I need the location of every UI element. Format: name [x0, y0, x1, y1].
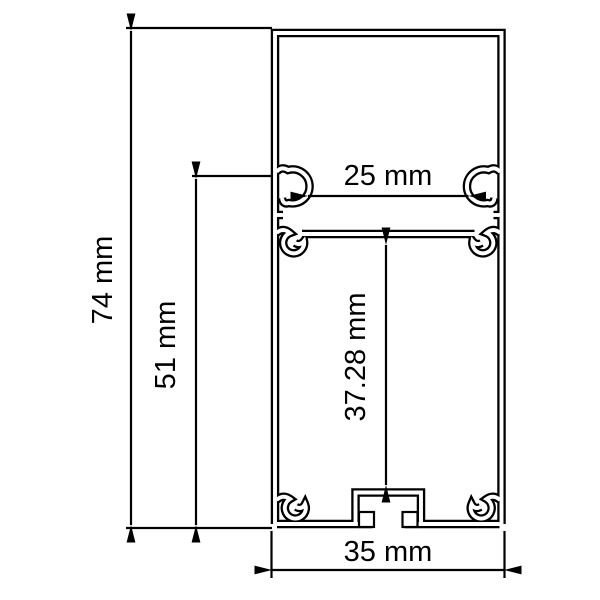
technical-drawing-canvas: 74 mm 51 mm 25 mm 37.28 mm 35 mm	[0, 0, 600, 600]
profile-outline-white-core	[275, 33, 502, 524]
dimension-35mm: 35 mm	[272, 531, 505, 578]
channel-foot-tab-right	[403, 512, 418, 527]
dimension-51mm: 51 mm	[150, 176, 272, 525]
dimension-37-28mm: 37.28 mm	[340, 245, 386, 485]
dim-label-25mm: 25 mm	[344, 160, 433, 192]
dimension-25mm: 25 mm	[308, 160, 469, 196]
dim-label-35mm: 35 mm	[344, 536, 433, 568]
dim-label-74mm: 74 mm	[87, 236, 119, 325]
dimension-74mm: 74 mm	[87, 28, 272, 528]
profile-frame	[275, 33, 502, 524]
dim-label-51mm: 51 mm	[150, 301, 182, 390]
channel-foot-tab-left	[359, 512, 374, 527]
profile-outline-black	[275, 33, 502, 524]
dim-label-37-28mm: 37.28 mm	[340, 293, 372, 422]
profile-drawing-svg: 74 mm 51 mm 25 mm 37.28 mm 35 mm	[0, 0, 600, 600]
